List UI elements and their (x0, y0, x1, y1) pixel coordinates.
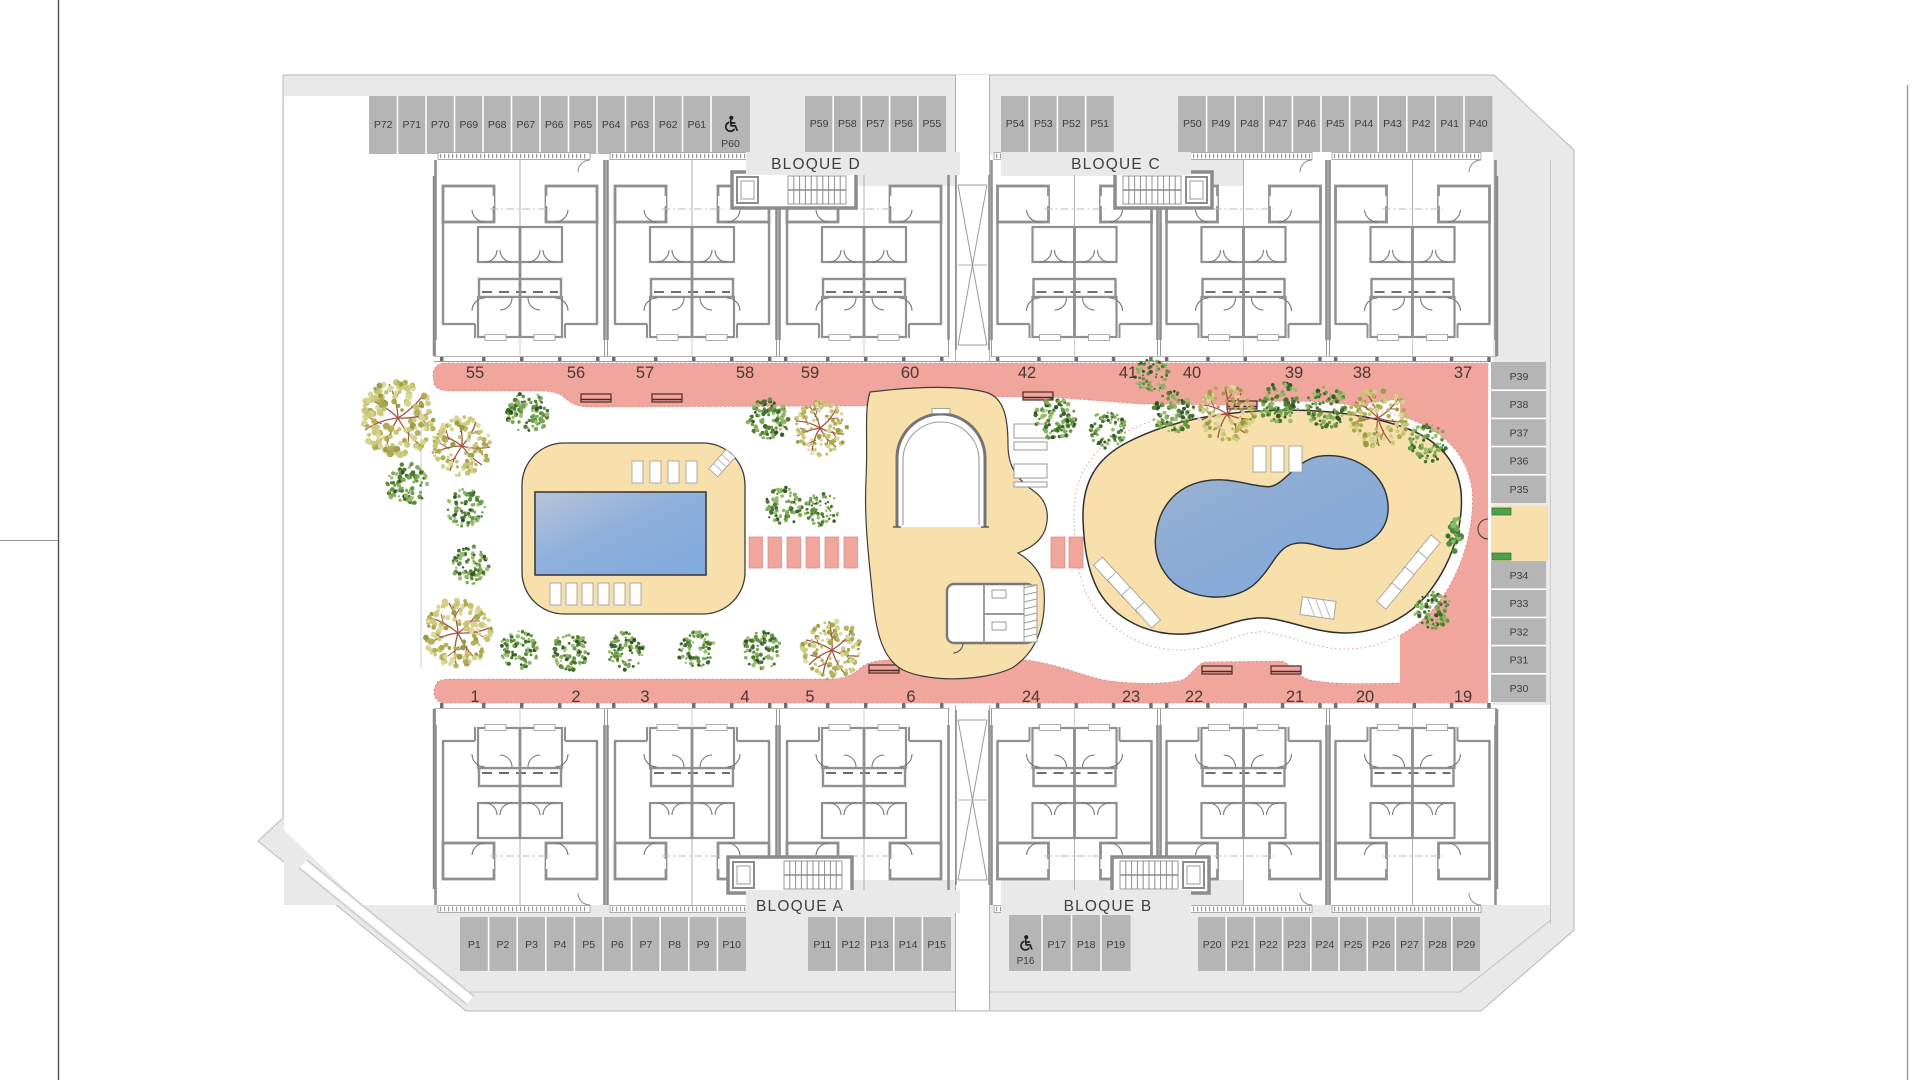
svg-text:P54: P54 (1006, 118, 1025, 130)
svg-text:P59: P59 (810, 118, 829, 130)
svg-text:P44: P44 (1355, 118, 1374, 130)
svg-text:P39: P39 (1510, 371, 1529, 383)
svg-text:P15: P15 (927, 939, 946, 951)
svg-text:5: 5 (805, 688, 814, 706)
svg-text:59: 59 (801, 364, 819, 382)
svg-text:19: 19 (1454, 688, 1472, 706)
svg-text:P72: P72 (374, 119, 393, 131)
svg-text:P5: P5 (582, 939, 595, 951)
svg-text:P52: P52 (1062, 118, 1081, 130)
svg-text:P1: P1 (468, 939, 481, 951)
svg-text:39: 39 (1285, 364, 1303, 382)
svg-text:P22: P22 (1259, 939, 1278, 951)
svg-text:P29: P29 (1457, 939, 1476, 951)
svg-text:P58: P58 (838, 118, 857, 130)
svg-text:P33: P33 (1510, 598, 1529, 610)
svg-text:P46: P46 (1297, 118, 1316, 130)
svg-text:23: 23 (1122, 688, 1140, 706)
svg-text:P66: P66 (545, 119, 564, 131)
svg-text:P24: P24 (1316, 939, 1335, 951)
svg-text:P56: P56 (894, 118, 913, 130)
svg-text:P55: P55 (923, 118, 942, 130)
svg-text:P65: P65 (573, 119, 592, 131)
svg-text:P8: P8 (668, 939, 681, 951)
svg-text:1: 1 (470, 688, 479, 706)
svg-text:P21: P21 (1231, 939, 1250, 951)
svg-text:20: 20 (1356, 688, 1374, 706)
svg-text:P7: P7 (639, 939, 652, 951)
svg-text:40: 40 (1183, 364, 1201, 382)
svg-text:P40: P40 (1469, 118, 1488, 130)
svg-text:P32: P32 (1510, 626, 1529, 638)
svg-text:3: 3 (640, 688, 649, 706)
svg-text:58: 58 (736, 364, 754, 382)
svg-text:BLOQUE B: BLOQUE B (1064, 898, 1153, 915)
svg-text:P60: P60 (721, 138, 740, 150)
svg-text:P28: P28 (1428, 939, 1447, 951)
svg-text:P69: P69 (459, 119, 478, 131)
svg-text:P6: P6 (611, 939, 624, 951)
svg-text:P35: P35 (1510, 484, 1529, 496)
svg-text:BLOQUE C: BLOQUE C (1071, 156, 1161, 173)
svg-text:55: 55 (466, 364, 484, 382)
svg-text:P36: P36 (1510, 456, 1529, 468)
svg-text:2: 2 (571, 688, 580, 706)
svg-text:BLOQUE A: BLOQUE A (756, 898, 844, 915)
svg-text:60: 60 (901, 364, 919, 382)
svg-text:P18: P18 (1077, 939, 1096, 951)
svg-text:6: 6 (906, 688, 915, 706)
svg-text:P19: P19 (1106, 939, 1125, 951)
svg-text:P70: P70 (431, 119, 450, 131)
svg-text:P53: P53 (1034, 118, 1053, 130)
svg-text:P47: P47 (1269, 118, 1288, 130)
svg-text:P30: P30 (1510, 683, 1529, 695)
svg-text:56: 56 (567, 364, 585, 382)
svg-text:P2: P2 (496, 939, 509, 951)
svg-text:37: 37 (1454, 364, 1472, 382)
svg-text:41: 41 (1119, 364, 1137, 382)
svg-text:P12: P12 (842, 939, 861, 951)
svg-text:P10: P10 (722, 939, 741, 951)
svg-text:P23: P23 (1287, 939, 1306, 951)
svg-text:P25: P25 (1344, 939, 1363, 951)
svg-text:P4: P4 (554, 939, 567, 951)
svg-text:P3: P3 (525, 939, 538, 951)
svg-text:P61: P61 (687, 119, 706, 131)
svg-text:P64: P64 (602, 119, 621, 131)
svg-text:P50: P50 (1183, 118, 1202, 130)
svg-text:P41: P41 (1440, 118, 1459, 130)
svg-text:P17: P17 (1047, 939, 1066, 951)
svg-text:P31: P31 (1510, 655, 1529, 667)
svg-text:P48: P48 (1240, 118, 1259, 130)
svg-text:22: 22 (1185, 688, 1203, 706)
svg-text:P11: P11 (813, 939, 831, 951)
svg-text:P62: P62 (659, 119, 678, 131)
svg-text:P51: P51 (1090, 118, 1109, 130)
svg-text:P71: P71 (402, 119, 421, 131)
svg-text:P13: P13 (870, 939, 889, 951)
svg-text:57: 57 (636, 364, 654, 382)
svg-text:P42: P42 (1412, 118, 1431, 130)
svg-text:P26: P26 (1372, 939, 1391, 951)
svg-text:4: 4 (740, 688, 749, 706)
svg-text:38: 38 (1353, 364, 1371, 382)
svg-text:P57: P57 (866, 118, 885, 130)
svg-text:P49: P49 (1212, 118, 1231, 130)
svg-text:BLOQUE D: BLOQUE D (771, 156, 861, 173)
svg-text:P45: P45 (1326, 118, 1345, 130)
svg-text:P43: P43 (1383, 118, 1402, 130)
svg-text:P16: P16 (1017, 956, 1035, 967)
svg-text:P27: P27 (1400, 939, 1419, 951)
svg-text:P38: P38 (1510, 399, 1529, 411)
svg-text:P68: P68 (488, 119, 507, 131)
svg-text:24: 24 (1022, 688, 1040, 706)
svg-text:P9: P9 (697, 939, 710, 951)
svg-text:42: 42 (1018, 364, 1036, 382)
svg-text:P37: P37 (1510, 427, 1529, 439)
svg-text:P20: P20 (1203, 939, 1222, 951)
svg-text:P63: P63 (630, 119, 649, 131)
svg-text:P34: P34 (1510, 570, 1529, 582)
svg-text:21: 21 (1286, 688, 1304, 706)
svg-text:P67: P67 (516, 119, 535, 131)
svg-text:P14: P14 (899, 939, 918, 951)
